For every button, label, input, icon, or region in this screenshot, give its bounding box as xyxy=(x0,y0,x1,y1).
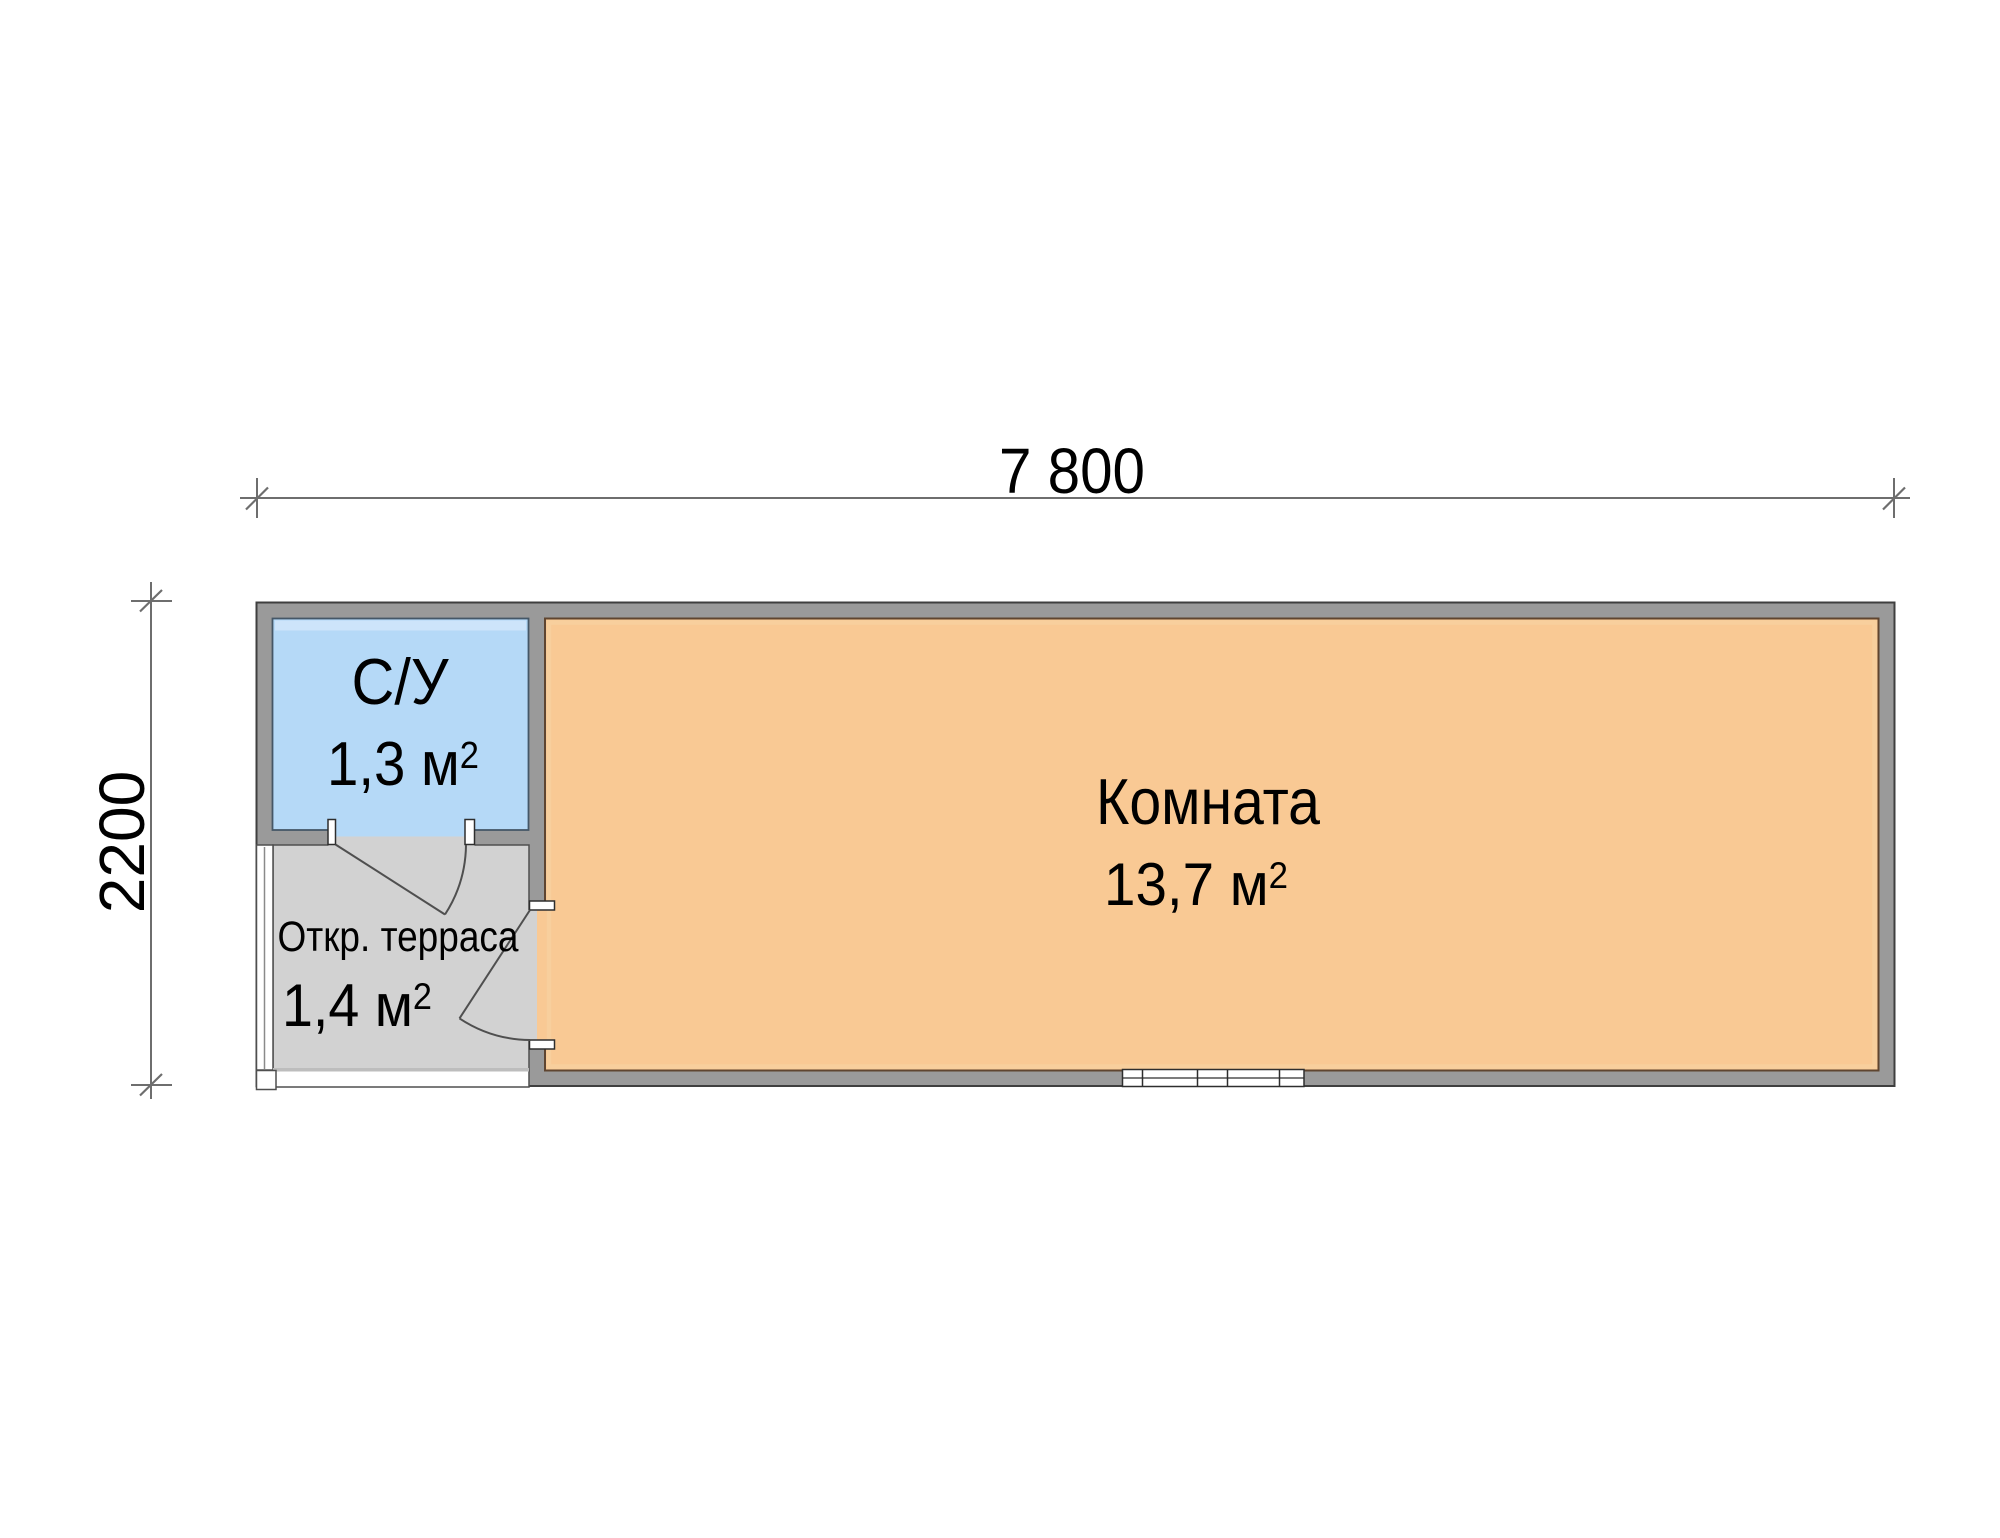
svg-text:7 800: 7 800 xyxy=(999,435,1145,507)
svg-text:13,7 м2: 13,7 м2 xyxy=(1104,851,1288,918)
svg-text:Откр. терраса: Откр. терраса xyxy=(278,913,519,961)
svg-text:1,4 м2: 1,4 м2 xyxy=(282,972,432,1039)
svg-text:С/У: С/У xyxy=(352,645,450,718)
svg-text:1,3 м2: 1,3 м2 xyxy=(327,730,479,799)
svg-text:2200: 2200 xyxy=(86,771,158,913)
svg-text:Комната: Комната xyxy=(1096,765,1321,838)
